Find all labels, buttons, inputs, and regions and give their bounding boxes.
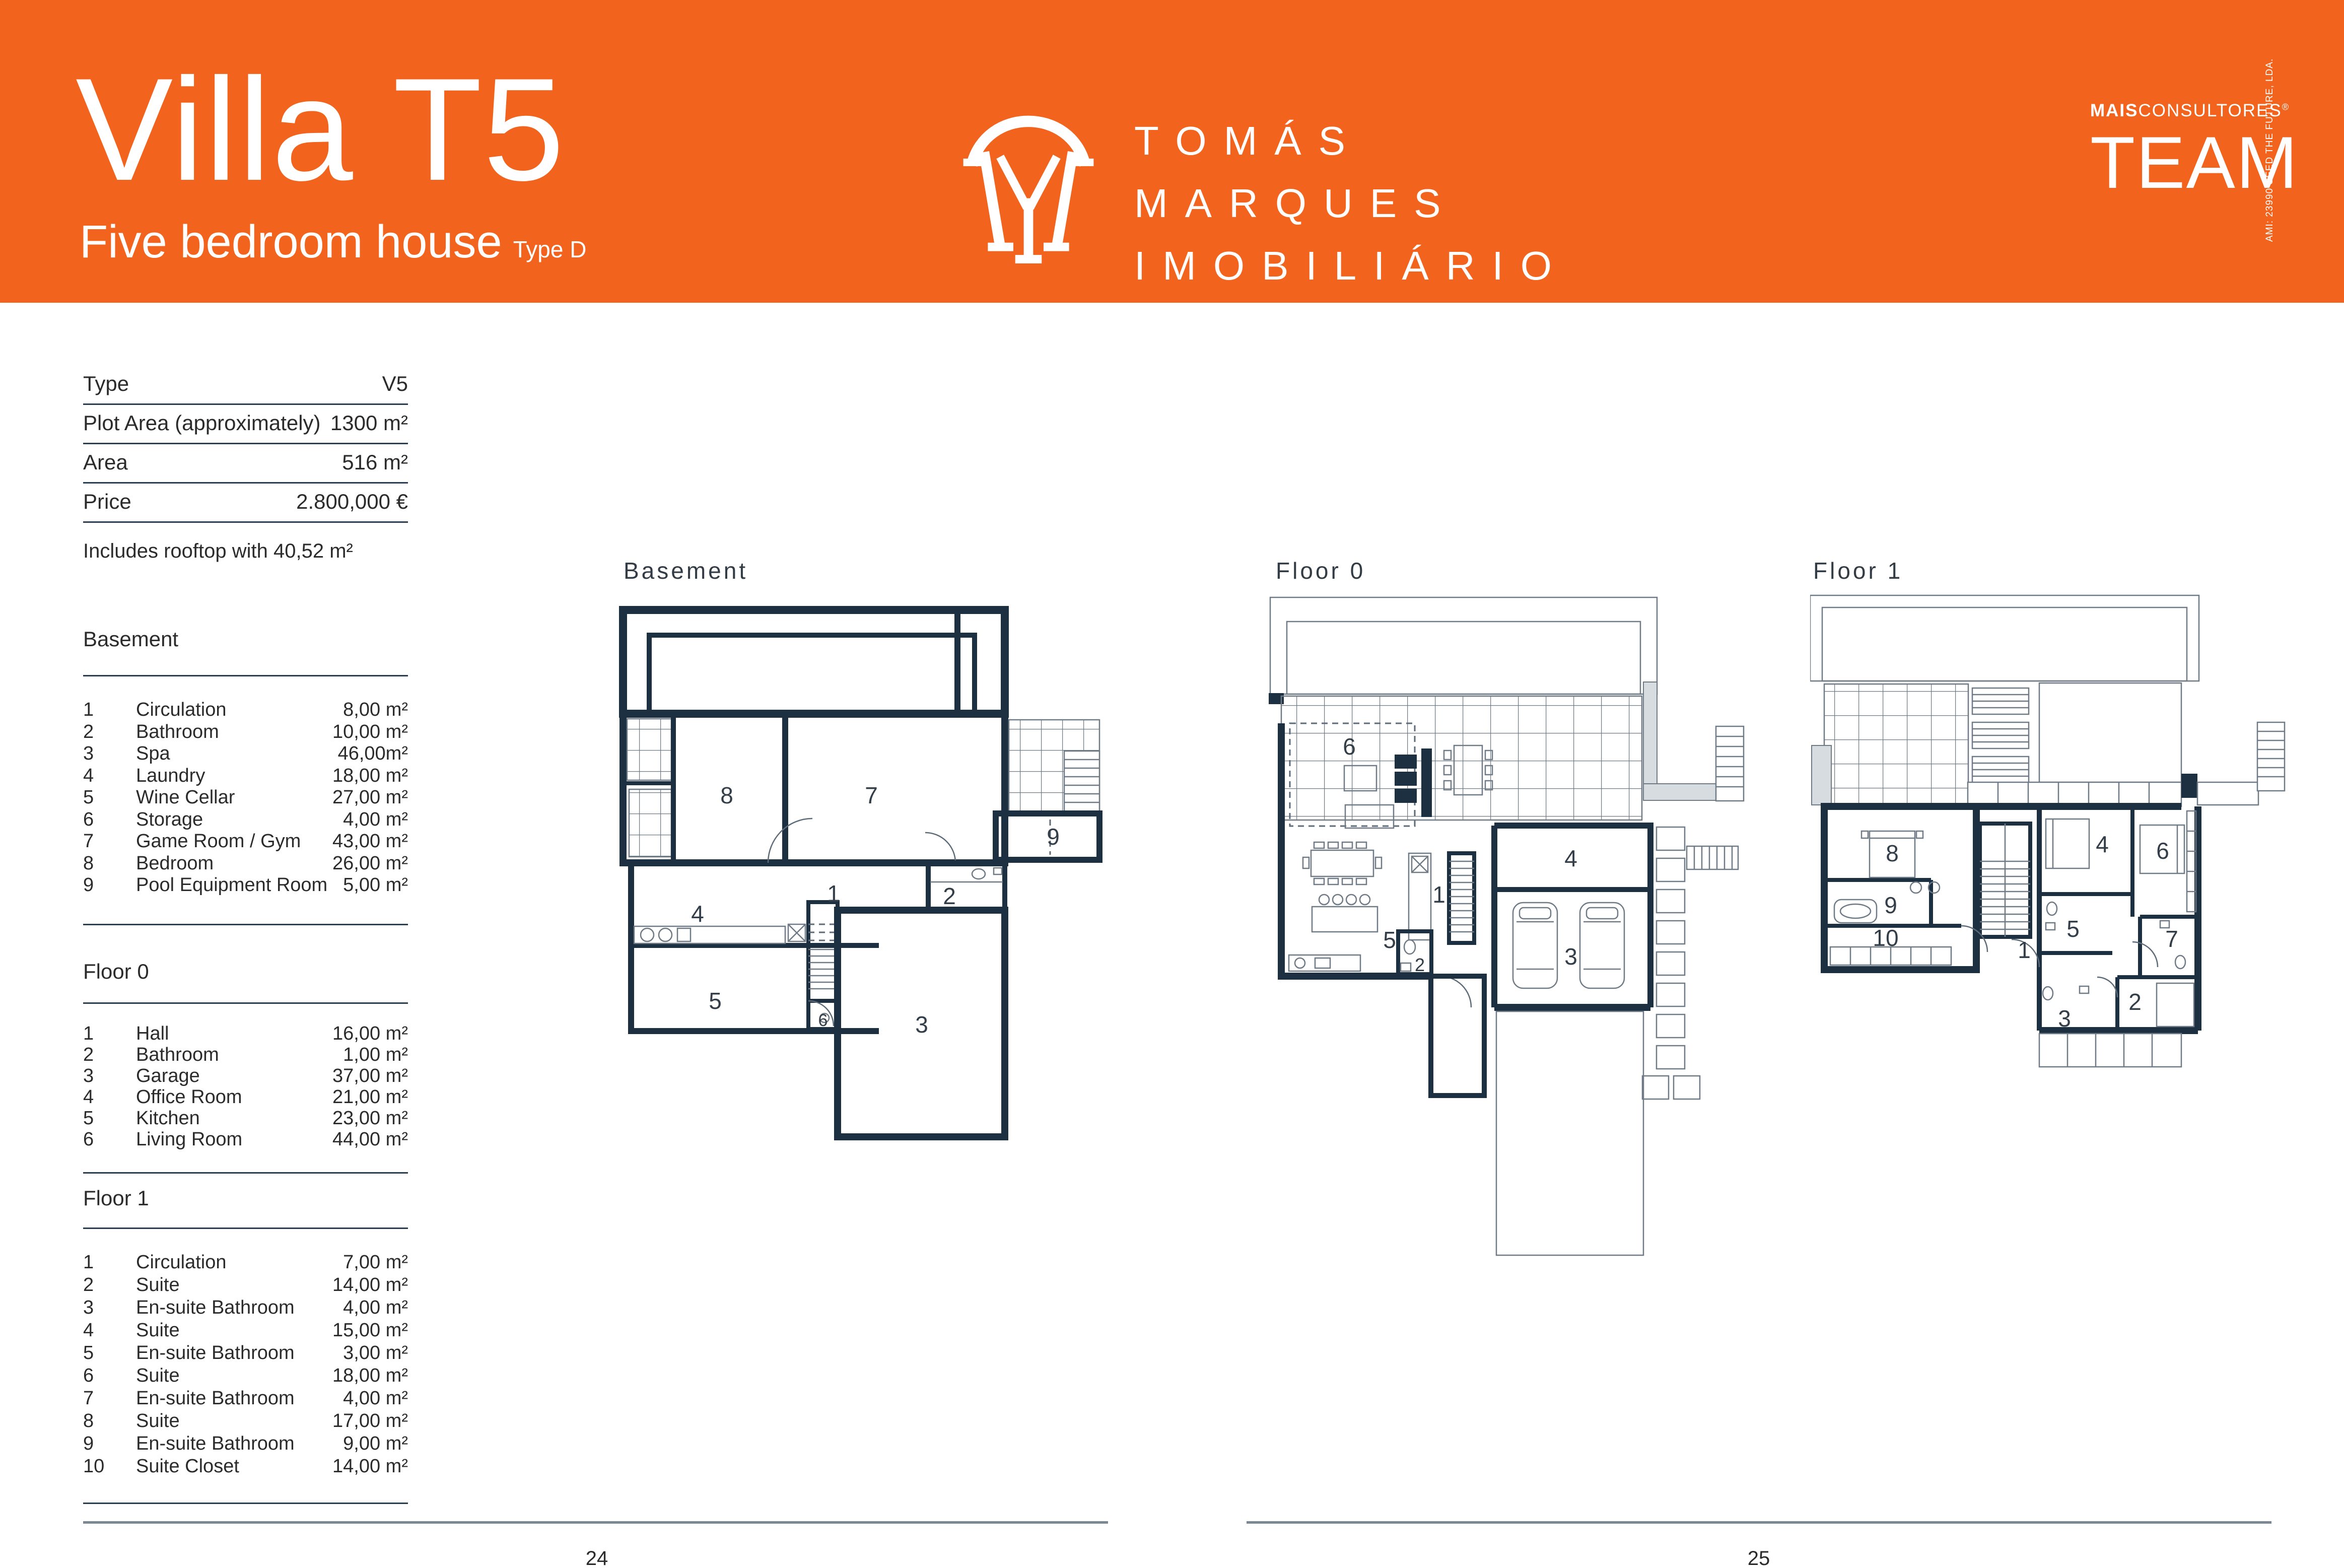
room-number: 4 bbox=[83, 1086, 94, 1108]
footer-rule-right bbox=[1247, 1521, 2271, 1524]
room-number-label: 9 bbox=[1884, 892, 1897, 918]
stairs-icon bbox=[1980, 824, 2030, 937]
room-row: 4Laundry18,00 m² bbox=[83, 765, 408, 787]
room-number: 8 bbox=[83, 853, 94, 874]
room-name: En-suite Bathroom bbox=[136, 1297, 295, 1319]
room-name: Storage bbox=[136, 809, 203, 831]
room-area: 1,00 m² bbox=[343, 1044, 408, 1066]
room-name: Suite bbox=[136, 1320, 180, 1341]
sink-icon bbox=[994, 868, 1002, 874]
spec-row-price: Price 2.800,000 € bbox=[83, 484, 408, 523]
door-arc bbox=[1440, 976, 1471, 1007]
room-name: Laundry bbox=[136, 765, 205, 787]
page-number-right: 25 bbox=[1729, 1547, 1789, 1568]
room-name: Bedroom bbox=[136, 853, 214, 874]
room-area: 14,00 m² bbox=[332, 1274, 408, 1296]
page-title: Villa T5 bbox=[76, 56, 566, 202]
room-row: 4Suite15,00 m² bbox=[83, 1320, 408, 1342]
room-name: Circulation bbox=[136, 699, 227, 721]
registered-mark: ® bbox=[2282, 102, 2290, 112]
room-number-label: 1 bbox=[2018, 937, 2031, 963]
room-row: 3Garage37,00 m² bbox=[83, 1065, 408, 1086]
spec-label: Price bbox=[83, 490, 131, 514]
spec-row-type: Type V5 bbox=[83, 366, 408, 405]
spec-label: Type bbox=[83, 372, 129, 396]
room-number: 1 bbox=[83, 699, 94, 721]
room-name: En-suite Bathroom bbox=[136, 1388, 295, 1409]
room-row: 6Living Room44,00 m² bbox=[83, 1129, 408, 1150]
room-row: 1Hall16,00 m² bbox=[83, 1023, 408, 1044]
room-number: 3 bbox=[83, 743, 94, 765]
footer-rule-left bbox=[83, 1521, 1108, 1524]
room-row: 3En-suite Bathroom4,00 m² bbox=[83, 1297, 408, 1320]
kitchen-island bbox=[1312, 907, 1377, 932]
room-area: 4,00 m² bbox=[343, 809, 408, 831]
room-number-label: 2 bbox=[1415, 955, 1425, 975]
basement-plan-label: Basement bbox=[624, 557, 748, 584]
door-arc bbox=[2132, 942, 2158, 967]
consultores-text: CONSULTORES bbox=[2139, 101, 2282, 120]
room-name: Circulation bbox=[136, 1252, 227, 1273]
room-row: 5Kitchen23,00 m² bbox=[83, 1108, 408, 1129]
toilet-icon bbox=[2043, 987, 2053, 1000]
brand-line-1: TOMÁS bbox=[1134, 110, 1569, 172]
room-number-label: 4 bbox=[1564, 845, 1577, 871]
terrace-tile-row bbox=[2039, 1034, 2181, 1067]
basement-room-list: Basement 1Circulation8,00 m² 2Bathroom10… bbox=[83, 627, 408, 925]
brochure-page: Villa T5 Five bedroom houseType D TOMÁS … bbox=[0, 0, 2344, 1568]
room-row: 8Bedroom26,00 m² bbox=[83, 853, 408, 875]
room-name: Garage bbox=[136, 1065, 200, 1087]
room-number: 5 bbox=[83, 1108, 94, 1129]
room-number-label: 7 bbox=[865, 782, 878, 808]
car-icon bbox=[1580, 903, 1624, 988]
room-number: 3 bbox=[83, 1297, 94, 1319]
washer-icon bbox=[641, 928, 654, 941]
cabinet-strip bbox=[1409, 853, 1431, 940]
pool-grid bbox=[1281, 696, 1642, 820]
room-number: 6 bbox=[83, 809, 94, 831]
spec-label: Area bbox=[83, 450, 128, 474]
terrace-grid bbox=[1824, 684, 1968, 806]
door-arc bbox=[925, 833, 955, 863]
section-title: Floor 0 bbox=[83, 960, 408, 984]
room-row: 4Office Room21,00 m² bbox=[83, 1086, 408, 1108]
room-number-label: 5 bbox=[1383, 927, 1396, 953]
stairs-icon bbox=[1064, 751, 1099, 813]
room-number: 3 bbox=[83, 1065, 94, 1087]
room-number-label: 10 bbox=[1873, 925, 1898, 951]
room-number: 2 bbox=[83, 721, 94, 743]
spec-label: Plot Area (approximately) bbox=[83, 411, 321, 435]
roof-outline bbox=[1810, 595, 2199, 681]
room-area: 7,00 m² bbox=[343, 1252, 408, 1273]
room-area: 17,00 m² bbox=[332, 1410, 408, 1432]
terrace-outline bbox=[1270, 597, 1657, 694]
room-number-label: 8 bbox=[1886, 840, 1899, 866]
floor1-floorplan: 8 9 10 1 4 5 6 7 2 3 bbox=[1810, 594, 2289, 1123]
room-name: Suite bbox=[136, 1365, 180, 1387]
room-area: 37,00 m² bbox=[332, 1065, 408, 1087]
dining-table bbox=[1311, 850, 1373, 876]
spec-row-area: Area 516 m² bbox=[83, 444, 408, 484]
toilet-icon bbox=[1404, 940, 1415, 954]
room-number-label: 2 bbox=[943, 883, 956, 909]
entry-porch bbox=[1431, 976, 1484, 1096]
car-icon bbox=[1513, 903, 1557, 988]
room-name: Pool Equipment Room bbox=[136, 874, 327, 896]
room-row: 1Circulation7,00 m² bbox=[83, 1252, 408, 1274]
room-row: 6Storage4,00 m² bbox=[83, 809, 408, 831]
room-name: Wine Cellar bbox=[136, 787, 235, 808]
room-name: Hall bbox=[136, 1023, 169, 1045]
room-row: 1Circulation8,00 m² bbox=[83, 699, 408, 721]
planter bbox=[1812, 745, 1831, 805]
room-row: 2Bathroom10,00 m² bbox=[83, 721, 408, 743]
room-area: 14,00 m² bbox=[332, 1456, 408, 1477]
room-row: 9Pool Equipment Room5,00 m² bbox=[83, 874, 408, 897]
section-title: Basement bbox=[83, 627, 408, 651]
room-number: 6 bbox=[83, 1365, 94, 1387]
stairs-icon bbox=[1687, 846, 1738, 869]
path bbox=[1643, 784, 1717, 800]
room-row: 3Spa46,00m² bbox=[83, 743, 408, 765]
room-area: 44,00 m² bbox=[332, 1129, 408, 1150]
spec-value: 516 m² bbox=[342, 450, 408, 474]
toilet-icon bbox=[972, 869, 985, 879]
room-name: Office Room bbox=[136, 1086, 242, 1108]
room-number-label: 3 bbox=[2058, 1005, 2071, 1032]
page-subtitle: Five bedroom houseType D bbox=[80, 216, 586, 268]
property-spec-table: Type V5 Plot Area (approximately) 1300 m… bbox=[83, 366, 408, 523]
door-arc bbox=[768, 819, 812, 863]
sink-icon bbox=[2080, 986, 2089, 993]
type-tag: Type D bbox=[513, 236, 587, 262]
room-area: 21,00 m² bbox=[332, 1086, 408, 1108]
floor0-room-list: Floor 0 1Hall16,00 m² 2Bathroom1,00 m² 3… bbox=[83, 960, 408, 1174]
room-area: 3,00 m² bbox=[343, 1342, 408, 1364]
room-name: Game Room / Gym bbox=[136, 831, 301, 852]
room-area: 5,00 m² bbox=[343, 874, 408, 896]
toilet-icon bbox=[2175, 956, 2185, 969]
room-name: Kitchen bbox=[136, 1108, 200, 1129]
brand-wordmark: TOMÁS MARQUES IMOBILIÁRIO bbox=[1134, 110, 1569, 297]
planter bbox=[1643, 682, 1657, 784]
room-number: 10 bbox=[83, 1456, 104, 1477]
door-arc bbox=[2097, 977, 2117, 997]
room-number-label: 8 bbox=[720, 782, 733, 808]
room-name: Living Room bbox=[136, 1129, 242, 1150]
subtitle-text: Five bedroom house bbox=[80, 216, 502, 267]
room-area: 46,00m² bbox=[338, 743, 408, 765]
sink-icon bbox=[2046, 923, 2055, 930]
patio-outline bbox=[623, 610, 1005, 714]
room-area: 4,00 m² bbox=[343, 1388, 408, 1409]
ami-vertical-text: AMI: 23990 SEED THE FUTURE, LDA. bbox=[2264, 131, 2276, 242]
room-area: 26,00 m² bbox=[332, 853, 408, 874]
room-name: Spa bbox=[136, 743, 170, 765]
header-band: Villa T5 Five bedroom houseType D TOMÁS … bbox=[0, 0, 2344, 303]
balcony-walkway bbox=[2197, 782, 2258, 805]
room-number: 6 bbox=[83, 1129, 94, 1150]
room-area: 18,00 m² bbox=[332, 1365, 408, 1387]
driveway bbox=[1496, 1011, 1643, 1255]
room-area: 9,00 m² bbox=[343, 1433, 408, 1455]
room-area: 8,00 m² bbox=[343, 699, 408, 721]
room-number: 7 bbox=[83, 1388, 94, 1409]
page-number-left: 24 bbox=[567, 1547, 627, 1568]
brand-line-2: MARQUES bbox=[1134, 172, 1569, 235]
room-number-label: 1 bbox=[827, 880, 840, 907]
stairs-icon bbox=[1716, 726, 1744, 801]
floor1-room-list: Floor 1 1Circulation7,00 m² 2Suite14,00 … bbox=[83, 1186, 408, 1504]
washer-icon bbox=[659, 928, 672, 941]
room-number: 5 bbox=[83, 787, 94, 808]
sink-icon bbox=[1910, 882, 1921, 893]
room-number: 5 bbox=[83, 1342, 94, 1364]
room-number-label: 1 bbox=[1432, 881, 1445, 908]
sink-icon bbox=[1295, 958, 1305, 968]
room-number-label: 6 bbox=[1343, 733, 1356, 760]
room-name: En-suite Bathroom bbox=[136, 1342, 295, 1364]
room-number: 9 bbox=[83, 874, 94, 896]
tm-monogram-icon bbox=[953, 80, 1104, 281]
room-number-label: 5 bbox=[2066, 916, 2080, 942]
room-number: 8 bbox=[83, 1410, 94, 1432]
floor1-plan-label: Floor 1 bbox=[1813, 557, 1903, 584]
room-area: 16,00 m² bbox=[332, 1023, 408, 1045]
room-number-label: 2 bbox=[2128, 989, 2142, 1015]
room-number-label: 6 bbox=[818, 1011, 828, 1030]
room-area: 10,00 m² bbox=[332, 721, 408, 743]
hatch-area bbox=[627, 719, 671, 780]
upper-terrace bbox=[2039, 683, 2181, 782]
room-area: 27,00 m² bbox=[332, 787, 408, 808]
spec-value: V5 bbox=[382, 372, 408, 396]
room-number-label: 9 bbox=[1047, 824, 1060, 850]
room-number-label: 5 bbox=[709, 988, 722, 1014]
sun-loungers bbox=[1972, 688, 2029, 783]
room-row: 5Wine Cellar27,00 m² bbox=[83, 787, 408, 809]
spec-row-plot-area: Plot Area (approximately) 1300 m² bbox=[83, 405, 408, 444]
room-area: 23,00 m² bbox=[332, 1108, 408, 1129]
room-row: 2Bathroom1,00 m² bbox=[83, 1044, 408, 1065]
room-number: 1 bbox=[83, 1023, 94, 1045]
room-name: Suite Closet bbox=[136, 1456, 239, 1477]
room-number: 9 bbox=[83, 1433, 94, 1455]
room-row: 7Game Room / Gym43,00 m² bbox=[83, 831, 408, 853]
room-row: 5En-suite Bathroom3,00 m² bbox=[83, 1342, 408, 1365]
room-number-label: 3 bbox=[1564, 943, 1577, 970]
sink-icon bbox=[1401, 963, 1411, 971]
room-area: 4,00 m² bbox=[343, 1297, 408, 1319]
spec-value: 2.800,000 € bbox=[296, 490, 408, 514]
bathtub-icon bbox=[1834, 900, 1877, 923]
room-name: Suite bbox=[136, 1274, 180, 1296]
floor0-plan-label: Floor 0 bbox=[1276, 557, 1365, 584]
stove-icon bbox=[1315, 958, 1330, 968]
room-number: 1 bbox=[83, 1252, 94, 1273]
basement-floorplan: 8 7 9 1 2 4 5 6 3 bbox=[597, 602, 1141, 1181]
spec-value: 1300 m² bbox=[330, 411, 408, 435]
brand-line-3: IMOBILIÁRIO bbox=[1134, 235, 1569, 297]
room-number: 4 bbox=[83, 1320, 94, 1341]
stairs-icon bbox=[808, 902, 838, 1001]
room-number-label: 4 bbox=[691, 901, 704, 927]
room-area: 15,00 m² bbox=[332, 1320, 408, 1341]
room-row: 6Suite18,00 m² bbox=[83, 1365, 408, 1388]
toilet-icon bbox=[2047, 902, 2057, 915]
room-row: 9En-suite Bathroom9,00 m² bbox=[83, 1433, 408, 1456]
rooftop-note: Includes rooftop with 40,52 m² bbox=[83, 540, 353, 563]
room-row: 8Suite17,00 m² bbox=[83, 1410, 408, 1433]
room-row: 2Suite14,00 m² bbox=[83, 1274, 408, 1297]
stairs-icon bbox=[2257, 722, 2285, 791]
stairs-icon bbox=[1449, 853, 1474, 943]
room-number-label: 4 bbox=[2096, 831, 2109, 857]
room-number: 2 bbox=[83, 1274, 94, 1296]
terrace-tile-row bbox=[1968, 782, 2181, 806]
section-title: Floor 1 bbox=[83, 1186, 408, 1210]
laundry-counter bbox=[634, 926, 785, 943]
room-number-label: 3 bbox=[915, 1011, 928, 1038]
room-number: 4 bbox=[83, 765, 94, 787]
room-name: En-suite Bathroom bbox=[136, 1433, 295, 1455]
room-row: 10Suite Closet14,00 m² bbox=[83, 1456, 408, 1478]
room-number-label: 6 bbox=[2156, 838, 2169, 864]
room-area: 43,00 m² bbox=[332, 831, 408, 852]
hatch-area bbox=[629, 789, 671, 857]
mais-bold: MAIS bbox=[2090, 101, 2139, 120]
bed-icon bbox=[2157, 983, 2194, 1027]
room-name: Suite bbox=[136, 1410, 180, 1432]
room-number: 2 bbox=[83, 1044, 94, 1066]
room-number-label: 7 bbox=[2165, 926, 2178, 952]
floor0-floorplan: 6 1 2 3 4 5 bbox=[1269, 594, 1753, 1269]
room-number: 7 bbox=[83, 831, 94, 852]
room-row: 7En-suite Bathroom4,00 m² bbox=[83, 1388, 408, 1410]
room-name: Bathroom bbox=[136, 721, 219, 743]
room-name: Bathroom bbox=[136, 1044, 219, 1066]
room-area: 18,00 m² bbox=[332, 765, 408, 787]
